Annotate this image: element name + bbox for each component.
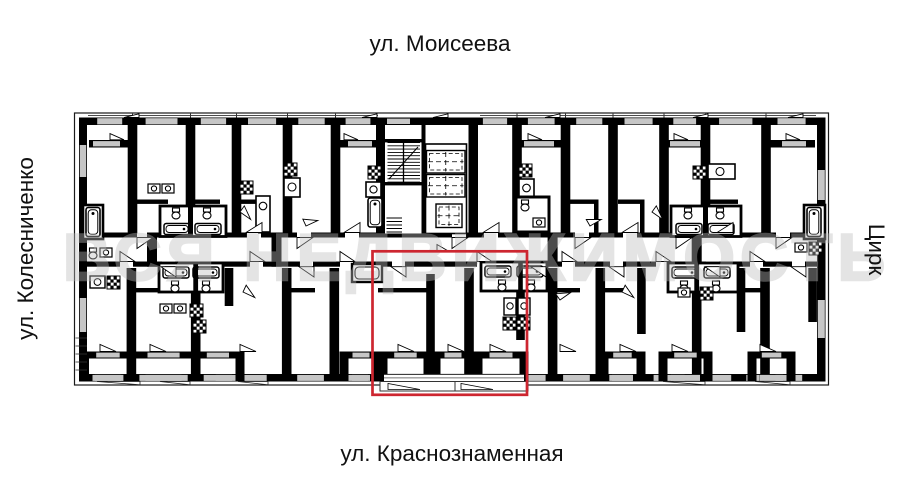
svg-text:ул. Моисеева: ул. Моисеева [370, 31, 511, 56]
svg-text:Цирк: Цирк [864, 224, 889, 276]
svg-text:ул. Краснознаменная: ул. Краснознаменная [340, 441, 563, 466]
svg-text:ВСЯ НЕДВИЖИМОСТЬ: ВСЯ НЕДВИЖИМОСТЬ [63, 220, 891, 294]
svg-text:ул. Колесниченко: ул. Колесниченко [13, 157, 38, 340]
